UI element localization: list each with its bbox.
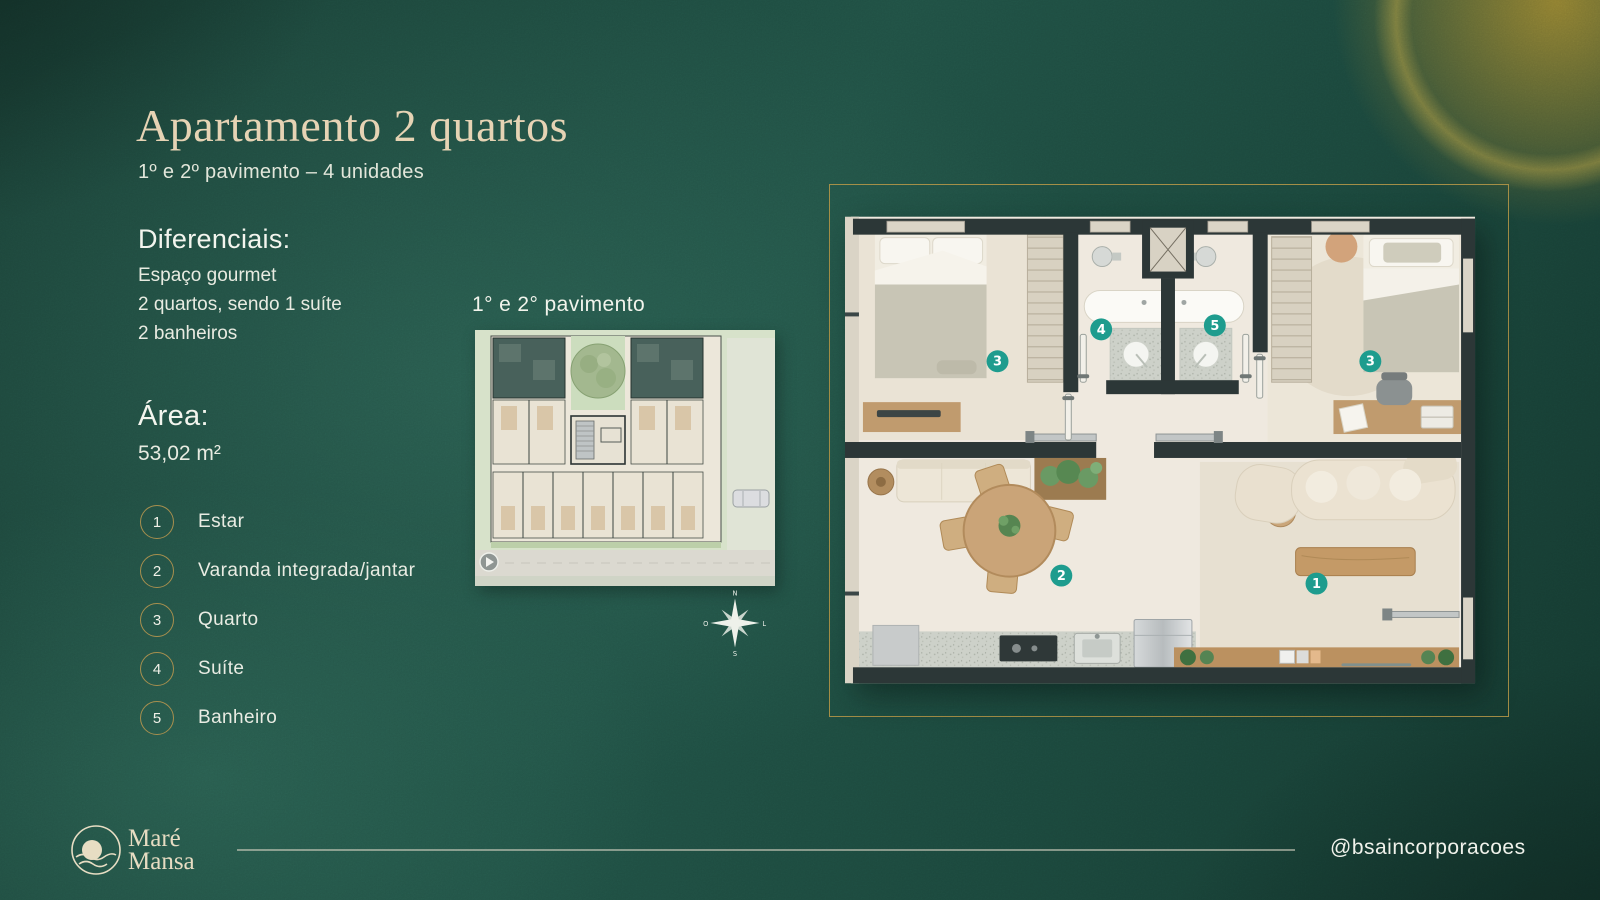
svg-text:N: N — [733, 590, 738, 598]
svg-text:O: O — [703, 620, 708, 628]
miniplan-label: 1° e 2° pavimento — [472, 293, 645, 317]
page-title: Apartamento 2 quartos — [136, 99, 568, 152]
instagram-handle: @bsaincorporacoes — [1330, 836, 1526, 860]
legend-item-banheiro: 5 Banheiro — [140, 701, 415, 735]
slide-background: Apartamento 2 quartos 1º e 2º pavimento … — [0, 0, 1600, 900]
marker-banheiro: 5 — [1210, 319, 1219, 334]
diferenciais-heading: Diferenciais: — [138, 224, 290, 255]
diferenciais-item: Espaço gourmet — [138, 261, 342, 290]
marker-quarto-left: 3 — [993, 355, 1002, 370]
brand-line-1: Maré — [128, 827, 195, 850]
marker-estar: 1 — [1312, 577, 1321, 592]
area-heading: Área: — [138, 400, 209, 433]
legend-label: Banheiro — [198, 707, 277, 729]
legend-item-quarto: 3 Quarto — [140, 603, 415, 637]
varanda-bench — [1174, 647, 1459, 667]
svg-text:L: L — [762, 620, 766, 628]
svg-text:S: S — [733, 650, 737, 657]
legend-label: Estar — [198, 511, 244, 533]
legend-number-badge: 4 — [140, 652, 174, 686]
room-legend: 1 Estar 2 Varanda integrada/jantar 3 Qua… — [140, 505, 415, 750]
diferenciais-list: Espaço gourmet 2 quartos, sendo 1 suíte … — [138, 261, 342, 348]
site-plan-thumbnail — [475, 330, 775, 586]
marker-varanda: 2 — [1057, 569, 1066, 584]
brand-name: Maré Mansa — [128, 827, 195, 873]
mare-mansa-logo-icon — [70, 824, 122, 876]
legend-number-badge: 5 — [140, 701, 174, 735]
diferenciais-item: 2 banheiros — [138, 319, 342, 348]
miniplan-nav-button[interactable] — [480, 553, 498, 571]
legend-item-varanda: 2 Varanda integrada/jantar — [140, 554, 415, 588]
marker-quarto-right: 3 — [1366, 355, 1375, 370]
diferenciais-item: 2 quartos, sendo 1 suíte — [138, 290, 342, 319]
brand-line-2: Mansa — [128, 850, 195, 873]
area-value: 53,02 m² — [138, 442, 221, 466]
legend-number-badge: 3 — [140, 603, 174, 637]
legend-number-badge: 2 — [140, 554, 174, 588]
legend-number-badge: 1 — [140, 505, 174, 539]
footer-divider-line — [237, 849, 1295, 851]
compass-rose-icon: N L S O — [701, 589, 769, 657]
legend-item-estar: 1 Estar — [140, 505, 415, 539]
legend-label: Quarto — [198, 609, 259, 631]
apartment-floorplan: 3 4 5 3 2 1 — [845, 204, 1483, 686]
legend-label: Varanda integrada/jantar — [198, 560, 415, 582]
page-subtitle: 1º e 2º pavimento – 4 unidades — [138, 161, 424, 184]
marker-suite: 4 — [1097, 323, 1106, 338]
legend-item-suite: 4 Suíte — [140, 652, 415, 686]
legend-label: Suíte — [198, 658, 244, 680]
car-icon — [733, 490, 769, 507]
